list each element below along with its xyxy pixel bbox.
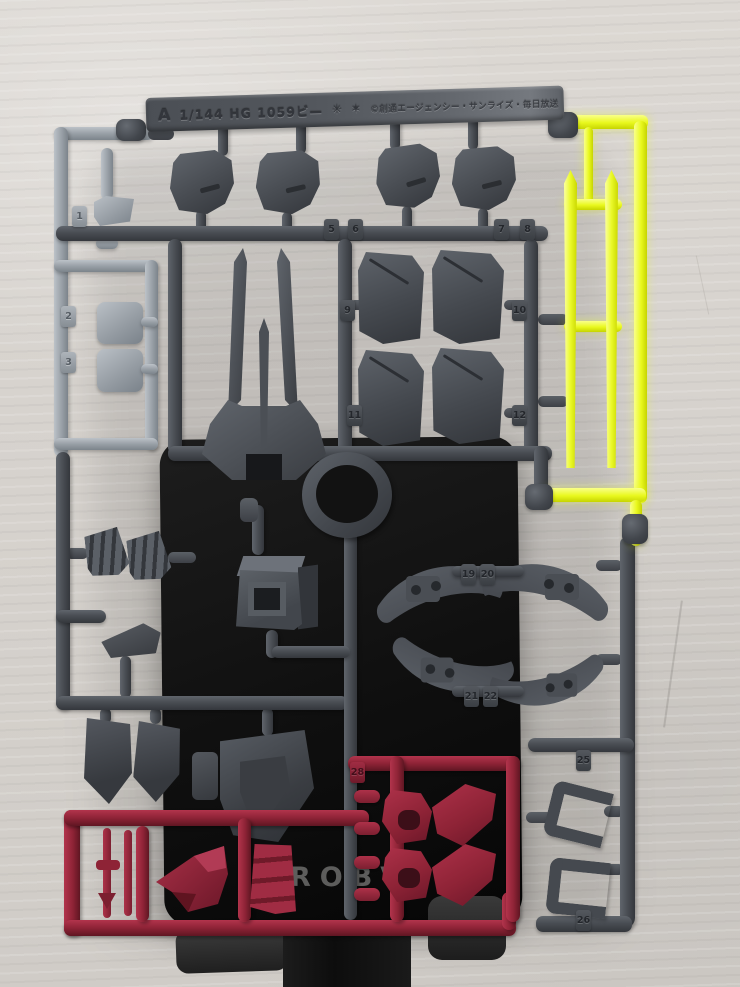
red-runner-rail [348,756,520,771]
runner-rail [168,239,182,454]
runner-letter: A [158,105,171,124]
mold-mark-icon: ✳ [332,102,342,116]
part-red-antenna [124,830,132,916]
stand-pedestal [283,930,411,987]
part-clip-light [94,196,134,226]
red-ring-hole [398,868,420,888]
runner-rail-left [56,452,70,710]
mold-mark-icon: ✶ [351,102,361,116]
part-leg-armor-12 [432,348,504,444]
light-runner-rail [54,438,158,450]
panel-vent-slit [285,184,306,193]
yellow-runner-rail [634,121,647,503]
runner-gate-bar [452,686,524,697]
panel-facet-line [369,356,410,383]
runner-gate [240,498,258,522]
red-runner-rail [506,756,520,922]
runner-rail [524,239,538,454]
part-square-light-3 [97,349,143,392]
panel-vent-slit [406,177,427,188]
runner-scale-text: 1/144 HG 1059ビ— [179,100,323,123]
part-square-light-2 [97,302,143,344]
part-small-block [192,752,218,800]
red-ring-hole [398,810,420,830]
yellow-runner-hanger [584,127,593,207]
runner-rail-lower [56,696,348,710]
panel-facet-line [369,258,410,285]
runner-gate-bar [452,566,524,577]
red-runner-rail [64,810,369,826]
runner-rail-bottom-right [536,916,632,932]
runner-gate [504,408,526,418]
light-runner-rail [145,260,158,450]
light-runner-gate [101,148,113,200]
runner-rail-top [56,226,548,241]
light-runner-rail [54,260,158,272]
red-runner-rail [64,920,516,936]
part-red-segmented [250,844,296,914]
panel-facet-line [443,256,484,283]
runner-joint-knob [525,484,553,510]
part-leg-armor-11 [358,350,424,446]
part-red-arrow [148,842,232,918]
light-runner-gate [141,364,158,374]
panel-facet-line [443,354,484,381]
runner-gate [262,708,273,736]
light-runner-rail [54,127,68,457]
torso-socket-hole [254,588,280,610]
runner-gate [120,656,131,698]
runner-gate [168,552,196,563]
red-antenna-crossbar [96,860,120,870]
panel-vent-slit [200,183,221,193]
part-curved-armor-20 [478,545,613,627]
runner-rail [338,239,352,454]
runner-gate [538,396,568,407]
runner-gate [150,708,161,724]
part-red-small [354,856,380,869]
part-red-small [354,822,380,835]
part-leg-armor-10 [432,250,504,344]
red-runner-rail [64,810,80,936]
runner-gate [272,646,350,658]
light-runner-gate [141,317,158,327]
panel-vent-slit [482,180,503,190]
runner-joint-knob [622,514,648,544]
copyright-text: ©創通エージェンシー・サンライズ・毎日放送 [370,96,559,115]
red-runner-rail [238,818,251,922]
part-red-small [354,790,380,803]
part-claw-26 [545,857,611,919]
part-leg-armor-9 [358,252,424,344]
runner-joint-knob [116,119,146,141]
part-tail-fin [198,248,330,484]
part-red-small [354,888,380,901]
runner-gate [504,300,526,310]
runner-rail [528,738,634,752]
yellow-runner-rail [546,488,646,502]
runner-rail-right [620,538,635,928]
photo-gunpla-runner: ROBV [0,0,740,987]
runner-rail [56,610,106,623]
